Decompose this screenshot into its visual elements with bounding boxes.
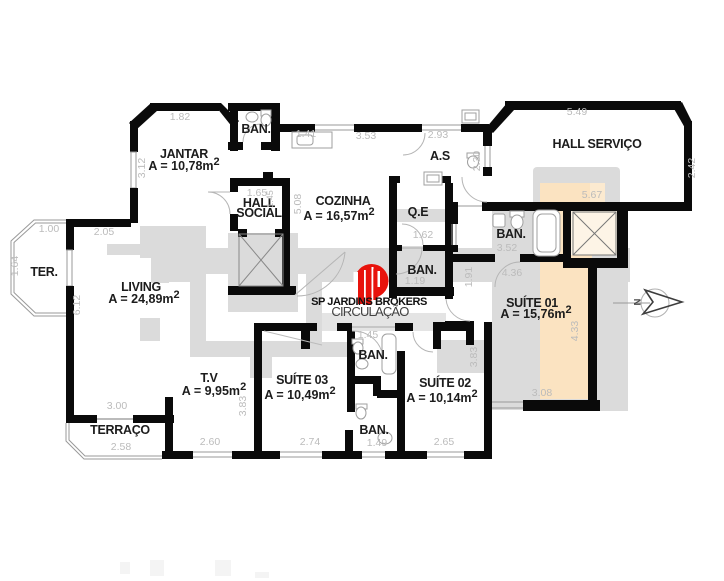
svg-text:A = 16,57m2: A = 16,57m2 [303, 206, 374, 223]
svg-text:BAN.: BAN. [241, 122, 270, 136]
svg-text:2.93: 2.93 [428, 129, 449, 141]
svg-text:1.64: 1.64 [9, 256, 21, 277]
svg-text:Q.E: Q.E [408, 205, 429, 219]
svg-text:A = 10,14m2: A = 10,14m2 [406, 388, 477, 405]
svg-text:A = 24,89m2: A = 24,89m2 [108, 289, 179, 306]
svg-text:A = 9,95m2: A = 9,95m2 [182, 381, 246, 398]
svg-text:BAN.: BAN. [359, 423, 388, 437]
svg-text:3.83: 3.83 [468, 347, 480, 368]
svg-text:BAN.: BAN. [496, 227, 525, 241]
svg-text:2.30: 2.30 [471, 151, 483, 172]
svg-text:CIRCULAÇÃO: CIRCULAÇÃO [331, 304, 409, 319]
svg-text:1.49: 1.49 [367, 437, 388, 449]
svg-text:5.49: 5.49 [567, 106, 588, 118]
svg-text:A = 15,76m2: A = 15,76m2 [500, 304, 571, 321]
svg-text:T.V: T.V [200, 371, 218, 385]
svg-text:2.05: 2.05 [94, 226, 115, 238]
svg-text:3.52: 3.52 [497, 242, 518, 254]
svg-text:A = 10,78m2: A = 10,78m2 [148, 156, 219, 173]
svg-text:6.12: 6.12 [71, 295, 83, 316]
svg-text:3.12: 3.12 [136, 158, 148, 179]
svg-text:2.58: 2.58 [111, 441, 132, 453]
svg-text:BAN.: BAN. [358, 348, 387, 362]
svg-text:1.00: 1.00 [39, 223, 60, 235]
svg-text:1.62: 1.62 [413, 229, 434, 241]
svg-text:A.S: A.S [430, 149, 450, 163]
svg-text:A = 10,49m2: A = 10,49m2 [264, 385, 335, 402]
svg-text:1.19: 1.19 [405, 275, 426, 287]
svg-text:HALL SERVIÇO: HALL SERVIÇO [552, 137, 642, 151]
svg-text:N: N [631, 299, 642, 306]
svg-text:2.74: 2.74 [300, 436, 321, 448]
svg-text:1.91: 1.91 [463, 267, 475, 288]
svg-text:TERRAÇO: TERRAÇO [90, 423, 150, 437]
svg-text:2.42: 2.42 [686, 158, 698, 179]
svg-text:1.45: 1.45 [358, 329, 379, 341]
svg-text:SOCIAL: SOCIAL [236, 206, 282, 220]
svg-text:1.41: 1.41 [296, 128, 317, 140]
svg-text:4.36: 4.36 [502, 267, 523, 279]
svg-text:3.53: 3.53 [356, 130, 377, 142]
svg-text:4.33: 4.33 [569, 321, 581, 342]
svg-text:3.83: 3.83 [237, 396, 249, 417]
svg-text:SUÍTE 02: SUÍTE 02 [419, 375, 471, 390]
svg-text:TER.: TER. [30, 265, 57, 279]
svg-text:3.08: 3.08 [532, 387, 553, 399]
svg-text:2.65: 2.65 [434, 436, 455, 448]
svg-text:1.45: 1.45 [265, 190, 275, 208]
svg-text:5.67: 5.67 [582, 189, 603, 201]
svg-text:SUÍTE 03: SUÍTE 03 [276, 372, 328, 387]
svg-text:1.82: 1.82 [170, 111, 191, 123]
svg-text:5.08: 5.08 [292, 194, 304, 215]
svg-text:2.60: 2.60 [200, 436, 221, 448]
svg-text:3.00: 3.00 [107, 400, 128, 412]
svg-text:COZINHA: COZINHA [316, 194, 371, 208]
